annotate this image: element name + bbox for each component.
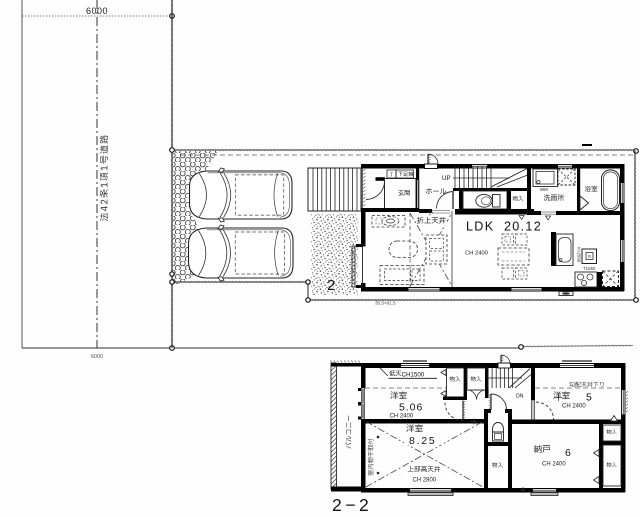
svg-text:CH 2400: CH 2400	[390, 414, 414, 420]
svg-text:8.25: 8.25	[409, 436, 436, 447]
svg-text:CH 2400: CH 2400	[465, 251, 488, 257]
svg-text:K=2550: K=2550	[577, 247, 582, 263]
svg-text:6000: 6000	[86, 6, 108, 16]
svg-text:2−2: 2−2	[332, 495, 372, 515]
svg-text:35.5×91.5: 35.5×91.5	[375, 301, 396, 306]
svg-text:2: 2	[327, 277, 335, 294]
svg-text:UP: UP	[442, 175, 451, 182]
svg-text:CH1500: CH1500	[402, 372, 425, 379]
svg-text:5: 5	[586, 393, 592, 404]
svg-text:6000: 6000	[91, 354, 103, 360]
svg-text:6: 6	[565, 448, 571, 459]
svg-text:LDK 20.12: LDK 20.12	[466, 220, 542, 234]
svg-text:R: R	[588, 254, 591, 259]
svg-text:CH 2400: CH 2400	[562, 404, 586, 410]
svg-text:T: T	[390, 173, 393, 179]
svg-text:WM: WM	[540, 187, 548, 192]
svg-text:CH 2400: CH 2400	[542, 462, 566, 468]
svg-text:DN: DN	[516, 394, 524, 400]
svg-text:CH 2800: CH 2800	[413, 478, 437, 484]
svg-text:T1650: T1650	[583, 266, 596, 271]
svg-text:5.06: 5.06	[399, 403, 423, 414]
